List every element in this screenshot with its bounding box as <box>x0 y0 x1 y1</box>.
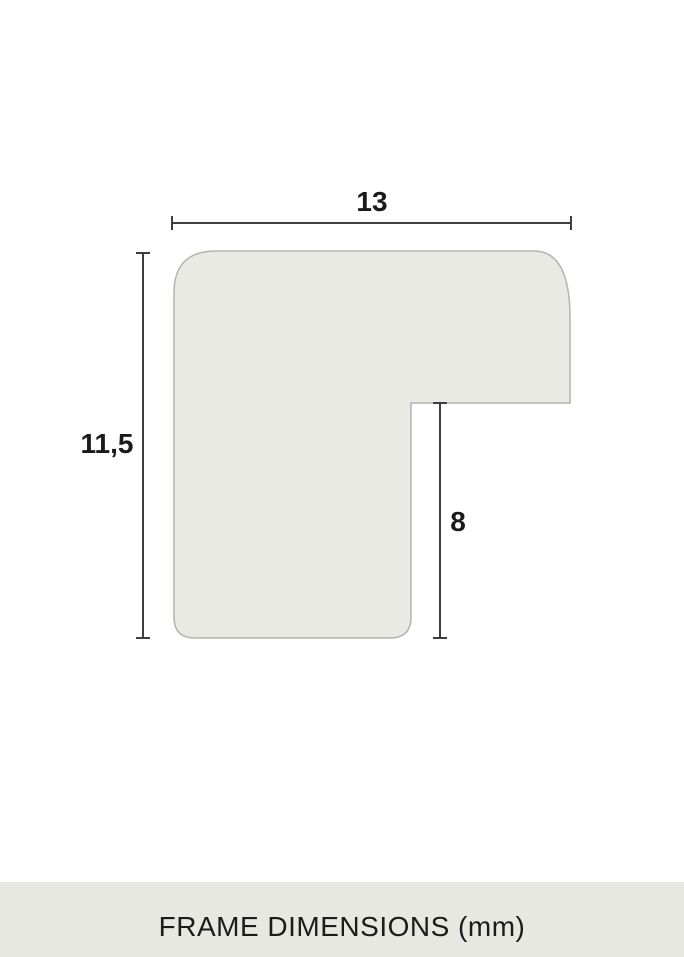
dimension-width-label: 13 <box>356 186 387 217</box>
caption-text: FRAME DIMENSIONS (mm) <box>159 913 526 941</box>
frame-dimensions-page: 13 11,5 8 FRAME DIMENSIONS (mm) <box>0 0 684 957</box>
frame-profile-diagram: 13 11,5 8 <box>0 0 684 882</box>
dimension-width <box>172 216 571 230</box>
caption-bar: FRAME DIMENSIONS (mm) <box>0 882 684 957</box>
dimension-height-label: 11,5 <box>81 428 134 459</box>
dimension-height <box>136 253 150 638</box>
dimension-rabbet <box>433 403 447 638</box>
frame-profile-shape <box>174 251 570 638</box>
dimension-rabbet-label: 8 <box>450 506 466 537</box>
